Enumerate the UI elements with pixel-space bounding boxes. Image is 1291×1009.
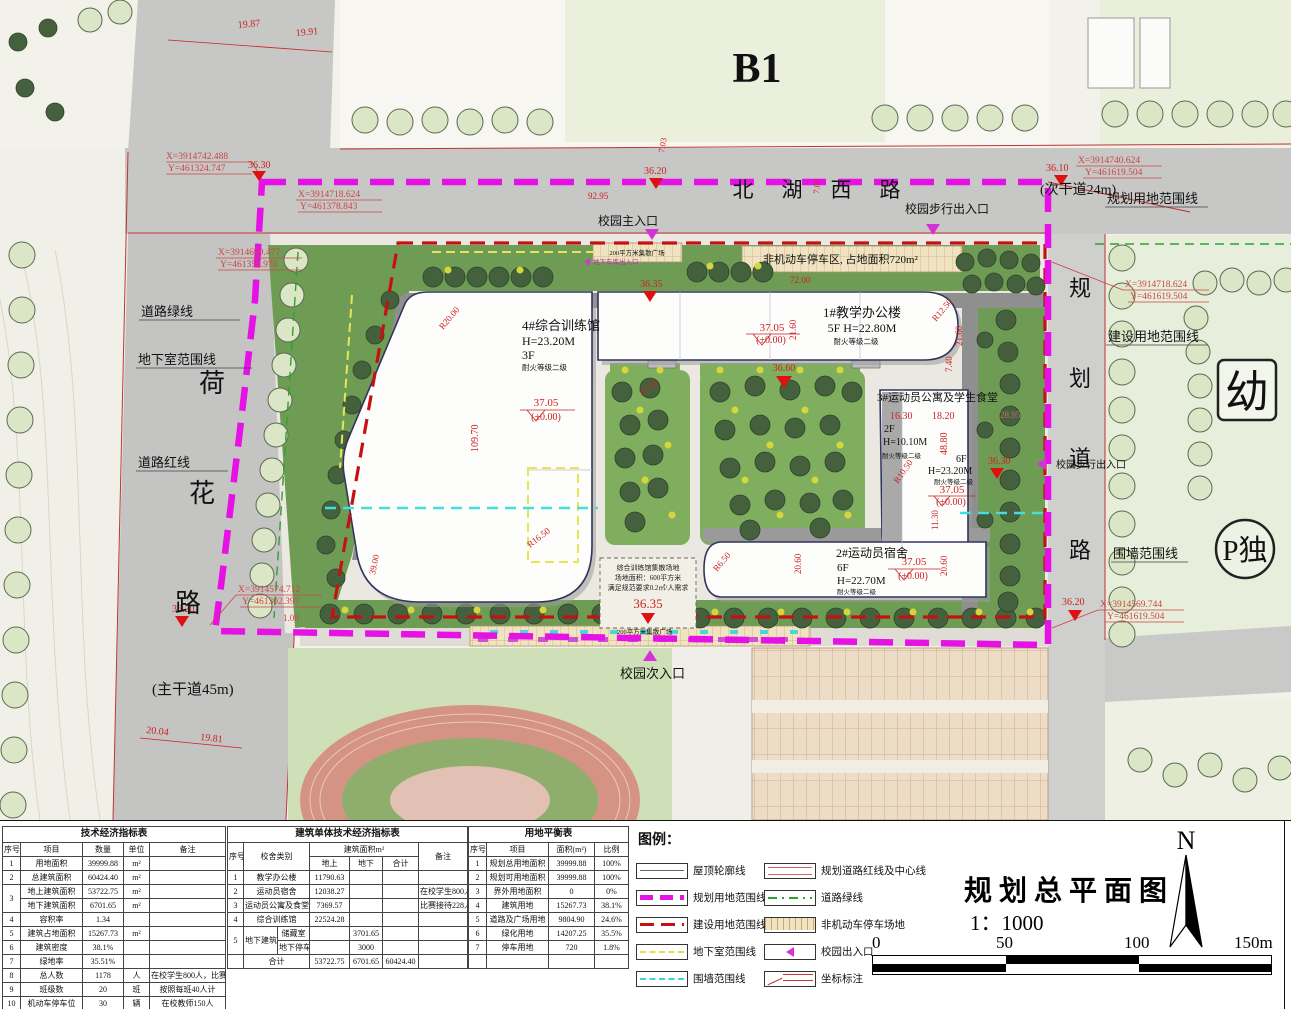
building-height: H=22.70M bbox=[837, 575, 886, 587]
table-cell: 1178 bbox=[83, 969, 124, 983]
legend-item: 屋顶轮廓线 bbox=[636, 857, 764, 884]
note-line-3: 满足规范要求0.2㎡/人需求 bbox=[608, 583, 689, 592]
table-cell bbox=[350, 899, 383, 913]
elevation-pm000: (±0.00) bbox=[756, 335, 786, 346]
table-cell: 按照每班40人计 bbox=[150, 983, 226, 997]
table-cell: 22524.28 bbox=[310, 913, 350, 927]
scale-tick: 150m bbox=[1234, 933, 1273, 953]
table-cell: 地下建筑 bbox=[244, 927, 278, 955]
coord-y: Y=461302.397 bbox=[242, 597, 300, 607]
table-cell: 4 bbox=[3, 913, 21, 927]
building-fire-rating: 耐火等级二级 bbox=[934, 477, 974, 486]
label-basement-boundary: 地下室范围线 bbox=[138, 352, 216, 367]
table-cell bbox=[350, 913, 383, 927]
coord-y: Y=461619.504 bbox=[1085, 168, 1143, 178]
table-cell: 5 bbox=[469, 913, 487, 927]
building-height: H=23.20M bbox=[522, 334, 575, 348]
table-cell: 100% bbox=[595, 857, 629, 871]
road-name-east: 划 bbox=[1069, 366, 1091, 391]
label-plaza200-top: 200平方米集散广场 bbox=[609, 248, 665, 257]
table-cell bbox=[419, 871, 468, 885]
table-cell: 1 bbox=[228, 871, 244, 885]
table-cell: 5 bbox=[228, 927, 244, 955]
table-cell: 39999.88 bbox=[83, 857, 124, 871]
coord-y: Y=461356.970 bbox=[220, 260, 278, 270]
table-cell: 用地平衡表 bbox=[469, 827, 629, 843]
table-cell: 备注 bbox=[150, 843, 226, 857]
road-name-west: 荷 bbox=[199, 369, 225, 398]
table-cell: 100% bbox=[595, 871, 629, 885]
table-cell bbox=[383, 927, 419, 941]
dim-2060: 20.60 bbox=[939, 555, 949, 576]
table-cell bbox=[383, 941, 419, 955]
table-cell: 60424.40 bbox=[383, 955, 419, 969]
table-cell: 序号 bbox=[228, 843, 244, 871]
table-cell bbox=[150, 871, 226, 885]
table-cell: 15267.73 bbox=[549, 899, 595, 913]
elevation-3705: 37.05 bbox=[760, 322, 785, 334]
road-redline-swatch bbox=[764, 863, 816, 879]
table-cell: 序号 bbox=[469, 843, 487, 857]
note-line-1: 综合训练馆集散场地 bbox=[617, 563, 680, 572]
building-floors: 3F bbox=[522, 348, 535, 362]
coord-x: X=3914740.624 bbox=[1078, 156, 1140, 166]
table-cell: 3 bbox=[228, 899, 244, 913]
dim-705: 7.05 bbox=[811, 178, 822, 194]
label-plaza200-bottom: 200平方米集散广场 bbox=[617, 627, 673, 636]
table-cell: 20 bbox=[83, 983, 124, 997]
table-cell: 合计 bbox=[244, 955, 310, 969]
coord-y: Y=461378.843 bbox=[300, 202, 358, 212]
coord-x: X=3914699.477 bbox=[218, 248, 280, 258]
dim-1630: 16.30 bbox=[890, 411, 913, 422]
building-fire-rating: 耐火等级二级 bbox=[522, 362, 567, 372]
road-name-north: 西 bbox=[831, 178, 852, 202]
legend-item: 建设用地范围线 bbox=[636, 911, 764, 938]
coord-y: Y=461619.504 bbox=[1130, 292, 1188, 302]
table-cell: 0 bbox=[549, 885, 595, 899]
dim-4880: 48.80 bbox=[939, 433, 950, 456]
table-cell: 3 bbox=[469, 885, 487, 899]
table-cell: 总建筑面积 bbox=[21, 871, 83, 885]
legend-item: 地下室范围线 bbox=[636, 938, 764, 965]
table-cell bbox=[150, 857, 226, 871]
building-height: H=23.20M bbox=[928, 466, 972, 477]
table-cell bbox=[150, 913, 226, 927]
table-cell: 9804.90 bbox=[549, 913, 595, 927]
table-cell bbox=[124, 955, 150, 969]
dim-7200: 72.00 bbox=[790, 275, 811, 285]
table-cell: 6 bbox=[3, 941, 21, 955]
table-cell: 建筑面积m² bbox=[310, 843, 419, 857]
label-ped-exit-right: 校园步行出入口 bbox=[1056, 458, 1126, 471]
legend-item: 围墙范围线 bbox=[636, 965, 764, 992]
building-fire-rating: 耐火等级二级 bbox=[837, 587, 877, 596]
note-line-2: 场地面积：600平方米 bbox=[615, 573, 682, 582]
building-height: H=10.10M bbox=[883, 437, 927, 448]
table-cell: 在校学生800人，比赛228人 bbox=[150, 969, 226, 983]
table-cell bbox=[310, 927, 350, 941]
table-cell: 7 bbox=[3, 955, 21, 969]
table-cell bbox=[310, 941, 350, 955]
table-cell: 用地面积 bbox=[21, 857, 83, 871]
table-cell: 11790.63 bbox=[310, 871, 350, 885]
table-cell bbox=[383, 913, 419, 927]
road-name-north: 北 bbox=[733, 178, 754, 202]
table-cell: 5 bbox=[3, 927, 21, 941]
legend-label: 围墙范围线 bbox=[693, 971, 746, 986]
table-cell bbox=[419, 913, 468, 927]
table-cell: 项目 bbox=[487, 843, 549, 857]
planning-boundary-swatch bbox=[636, 890, 688, 906]
road-name-east: 路 bbox=[1069, 538, 1091, 563]
table-cell: 地上建筑面积 bbox=[21, 885, 83, 899]
table-cell: 教学办公楼 bbox=[244, 871, 310, 885]
table-cell: 0% bbox=[595, 885, 629, 899]
table-cell: 15267.73 bbox=[83, 927, 124, 941]
table-cell: 39999.88 bbox=[549, 857, 595, 871]
elevation-3630-corner: 36.30 bbox=[248, 160, 271, 171]
kindergarten-badge: 幼 bbox=[1225, 368, 1269, 417]
table-cell: 4 bbox=[228, 913, 244, 927]
table-cell: 运动员宿舍 bbox=[244, 885, 310, 899]
building-floors: 2F bbox=[884, 424, 895, 435]
table-cell: 界外用地面积 bbox=[487, 885, 549, 899]
dim-2060: 20.60 bbox=[793, 553, 803, 574]
table-cell: 停车用地 bbox=[487, 941, 549, 955]
label-secondary-entrance: 校园次入口 bbox=[620, 666, 685, 681]
table-cell: 9 bbox=[3, 983, 21, 997]
elevation-3635-note: 36.35 bbox=[633, 596, 662, 611]
building-name: 3#运动员公寓及学生食堂 bbox=[877, 390, 998, 404]
road-name-east: 规 bbox=[1069, 276, 1091, 301]
dim-9295: 92.95 bbox=[588, 191, 609, 201]
table-cell: 7 bbox=[469, 941, 487, 955]
site-plan: 综合训练馆集散场地 场地面积：600平方米 满足规范要求0.2㎡/人需求 36.… bbox=[0, 0, 1291, 820]
label-plan-boundary: 规划用地范围线 bbox=[1107, 191, 1198, 206]
table-cell: 比例 bbox=[595, 843, 629, 857]
table-cell bbox=[383, 885, 419, 899]
table-cell: 24.6% bbox=[595, 913, 629, 927]
elevation-3635-top: 36.35 bbox=[640, 279, 663, 290]
table-cell bbox=[150, 941, 226, 955]
basement-boundary-swatch bbox=[636, 944, 688, 960]
table-cell bbox=[150, 899, 226, 913]
sheet-border-line bbox=[1284, 821, 1285, 1009]
table-cell bbox=[419, 941, 468, 955]
legend-label: 屋顶轮廓线 bbox=[693, 863, 746, 878]
coord-y: Y=461619.504 bbox=[1107, 612, 1165, 622]
building-fire-rating: 耐火等级二级 bbox=[834, 336, 879, 346]
coord-x: X=3914742.488 bbox=[166, 152, 228, 162]
table-cell: 容积率 bbox=[21, 913, 83, 927]
coord-x: X=3914574.712 bbox=[238, 585, 300, 595]
legend-label: 规划用地范围线 bbox=[693, 890, 767, 905]
table-cell: 4 bbox=[469, 899, 487, 913]
campus-gate-swatch bbox=[764, 944, 816, 960]
building-fire-rating: 耐火等级二级 bbox=[882, 451, 922, 460]
table-cell: 1 bbox=[469, 857, 487, 871]
coord-y: Y=461324.747 bbox=[168, 164, 226, 174]
legend-item: 规划用地范围线 bbox=[636, 884, 764, 911]
table-cell: 6 bbox=[469, 927, 487, 941]
elevation-3610: 36.10 bbox=[1046, 163, 1069, 174]
table-cell: 1.34 bbox=[83, 913, 124, 927]
bike-parking-swatch bbox=[764, 917, 816, 933]
road-name-north: 湖 bbox=[782, 178, 803, 202]
title-panel: 技术经济指标表序号项目数量单位备注1用地面积39999.88m²2总建筑面积60… bbox=[0, 820, 1291, 1009]
table-cell bbox=[350, 885, 383, 899]
dim-1987: 19.87 bbox=[237, 18, 260, 31]
table-cell: m² bbox=[124, 857, 150, 871]
table-cell: 8 bbox=[3, 969, 21, 983]
drawing-title: 规划总平面图 bbox=[964, 869, 1174, 909]
dim-1991: 19.91 bbox=[295, 26, 318, 39]
dim-10970: 109.70 bbox=[470, 425, 481, 453]
north-label: N bbox=[1177, 826, 1196, 855]
table-cell: 30 bbox=[83, 997, 124, 1009]
table-cell: 在校学生800人 bbox=[419, 885, 468, 899]
scale-tick: 50 bbox=[996, 933, 1013, 953]
table-cell: 38.1% bbox=[83, 941, 124, 955]
building-floors: 6F bbox=[956, 454, 967, 465]
elevation-pm000: (±0.00) bbox=[531, 412, 561, 423]
elevation-3620-top: 36.20 bbox=[644, 166, 667, 177]
table-cell: 储藏室 bbox=[278, 927, 310, 941]
table-cell bbox=[150, 955, 226, 969]
table-cell bbox=[595, 955, 629, 969]
label-wall-boundary: 围墙范围线 bbox=[1113, 546, 1178, 561]
label-ped-exit-top: 校园步行出入口 bbox=[905, 201, 989, 216]
table-cell: 7369.57 bbox=[310, 899, 350, 913]
table-cell: 运动员公寓及食堂 bbox=[244, 899, 310, 913]
table-cell: 14207.25 bbox=[549, 927, 595, 941]
building-indicators-table: 建筑单体技术经济指标表序号校舍类别建筑面积m²备注地上地下合计1教学办公楼117… bbox=[227, 826, 468, 969]
table-cell: 规划总用地面积 bbox=[487, 857, 549, 871]
table-cell: 建筑用地 bbox=[487, 899, 549, 913]
legend-label: 道路绿线 bbox=[821, 890, 863, 905]
elevation-3620-se: 36.20 bbox=[1062, 597, 1085, 608]
table-cell: 地下 bbox=[350, 857, 383, 871]
table-cell bbox=[419, 955, 468, 969]
coord-x: X=3914569.744 bbox=[1100, 600, 1162, 610]
road-name-west: 花 bbox=[189, 479, 215, 508]
label-garage-entrance: 地下车库出入口 bbox=[593, 257, 639, 266]
table-cell: 合计 bbox=[383, 857, 419, 871]
dim-2004: 20.04 bbox=[146, 725, 170, 738]
dim-1981: 19.81 bbox=[200, 732, 224, 745]
label-build-boundary: 建设用地范围线 bbox=[1108, 329, 1199, 344]
table-cell bbox=[150, 927, 226, 941]
table-cell: 10 bbox=[3, 997, 21, 1009]
table-cell: 53722.75 bbox=[83, 885, 124, 899]
table-cell: 单位 bbox=[124, 843, 150, 857]
building-floors-height: 5F H=22.80M bbox=[828, 321, 897, 335]
table-cell: 绿化用地 bbox=[487, 927, 549, 941]
table-cell: 综合训练馆 bbox=[244, 913, 310, 927]
table-cell bbox=[383, 871, 419, 885]
dim-1130: 11.30 bbox=[930, 510, 940, 530]
table-cell: 地下停车 bbox=[278, 941, 310, 955]
table-cell bbox=[228, 955, 244, 969]
legend-label: 建设用地范围线 bbox=[693, 917, 767, 932]
coord-x: X=3914718.624 bbox=[298, 190, 360, 200]
table-cell: 道路及广场用地 bbox=[487, 913, 549, 927]
wall-boundary-swatch bbox=[636, 971, 688, 987]
scale-bar: 0 50 100 150m bbox=[872, 933, 1272, 975]
table-cell bbox=[124, 913, 150, 927]
table-cell: 班 bbox=[124, 983, 150, 997]
table-cell: m² bbox=[124, 927, 150, 941]
scale-tick: 0 bbox=[872, 933, 881, 953]
elevation-3705: 37.05 bbox=[534, 397, 559, 409]
table-cell: 6701.65 bbox=[350, 955, 383, 969]
table-cell: 建筑密度 bbox=[21, 941, 83, 955]
table-cell: 35.51% bbox=[83, 955, 124, 969]
road-name-north: 路 bbox=[880, 178, 901, 202]
table-cell: 序号 bbox=[3, 843, 21, 857]
dim-740: 7.40 bbox=[944, 356, 954, 372]
table-cell bbox=[487, 955, 549, 969]
building-name: 2#运动员宿舍 bbox=[836, 545, 908, 560]
table-cell: 建筑占地面积 bbox=[21, 927, 83, 941]
table-cell bbox=[124, 941, 150, 955]
table-cell: 2 bbox=[469, 871, 487, 885]
table-cell: 辆 bbox=[124, 997, 150, 1009]
table-cell: m² bbox=[124, 871, 150, 885]
dim-2895: 28.95 bbox=[1000, 410, 1021, 420]
table-cell: 6701.65 bbox=[83, 899, 124, 913]
road-name-west: 路 bbox=[175, 589, 201, 618]
building-name: 4#综合训练馆 bbox=[522, 318, 600, 333]
dim-2160: 21.60 bbox=[954, 325, 964, 346]
drawing-sheet: 综合训练馆集散场地 场地面积：600平方米 满足规范要求0.2㎡/人需求 36.… bbox=[0, 0, 1291, 1009]
label-road-red: 道路红线 bbox=[138, 455, 190, 470]
table-cell: 数量 bbox=[83, 843, 124, 857]
table-cell bbox=[350, 871, 383, 885]
coordinate-swatch bbox=[764, 971, 816, 987]
table-cell: 规划可用地面积 bbox=[487, 871, 549, 885]
label-main-entrance: 校园主入口 bbox=[598, 213, 658, 228]
table-cell: 2 bbox=[228, 885, 244, 899]
table-cell bbox=[469, 955, 487, 969]
table-cell: 比赛接待228人 bbox=[419, 899, 468, 913]
dim-2160: 21.60 bbox=[788, 319, 798, 340]
road-greenline-swatch bbox=[764, 890, 816, 906]
table-cell bbox=[419, 927, 468, 941]
table-cell: 1.8% bbox=[595, 941, 629, 955]
table-cell: 60424.40 bbox=[83, 871, 124, 885]
table-cell: 3000 bbox=[350, 941, 383, 955]
building-floors: 6F bbox=[837, 562, 849, 574]
table-cell: 绿地率 bbox=[21, 955, 83, 969]
parking-badge: P独 bbox=[1222, 534, 1267, 567]
table-cell bbox=[549, 955, 595, 969]
table-cell: 39999.88 bbox=[549, 871, 595, 885]
table-cell bbox=[383, 899, 419, 913]
elevation-3630-east: 36.30 bbox=[988, 456, 1011, 467]
table-cell: 机动车停车位 bbox=[21, 997, 83, 1009]
table-cell: 3 bbox=[3, 885, 21, 913]
elevation-pm000: (±0.00) bbox=[898, 571, 928, 582]
elevation-pm000: (±0.00) bbox=[936, 497, 966, 508]
scale-bar-graphic bbox=[872, 955, 1272, 975]
table-cell: 地上 bbox=[310, 857, 350, 871]
table-cell: 总人数 bbox=[21, 969, 83, 983]
scale-tick: 100 bbox=[1124, 933, 1150, 953]
sports-field bbox=[288, 648, 672, 820]
table-cell: 项目 bbox=[21, 843, 83, 857]
roof-outline-swatch bbox=[636, 863, 688, 879]
title-block: 规划总平面图 1：1000 N 0 50 100 150m bbox=[860, 821, 1284, 1009]
table-cell: 2 bbox=[3, 871, 21, 885]
table-cell bbox=[150, 885, 226, 899]
table-cell: 12038.27 bbox=[310, 885, 350, 899]
table-cell: 人 bbox=[124, 969, 150, 983]
table-cell: 38.1% bbox=[595, 899, 629, 913]
legend: 图例： 屋顶轮廓线 规划用地范围线 建设用地范围线 地下室范围线 围墙范围线 规… bbox=[636, 827, 888, 992]
table-cell: 3701.65 bbox=[350, 927, 383, 941]
legend-title: 图例： bbox=[638, 829, 888, 849]
table-cell: 53722.75 bbox=[310, 955, 350, 969]
table-cell: 720 bbox=[549, 941, 595, 955]
table-cell: 班级数 bbox=[21, 983, 83, 997]
elevation-3660: 36.60 bbox=[773, 363, 796, 374]
dim-100: 1.00 bbox=[283, 613, 299, 623]
table-cell: 建筑单体技术经济指标表 bbox=[228, 827, 468, 843]
road-north-note: (次干道24m) bbox=[1040, 182, 1117, 198]
table-cell: 在校教师150人 bbox=[150, 997, 226, 1009]
table-cell: 备注 bbox=[419, 843, 468, 871]
building-name: 1#教学办公楼 bbox=[823, 305, 901, 320]
table-cell: 35.5% bbox=[595, 927, 629, 941]
table-cell: 1 bbox=[3, 857, 21, 871]
road-west-note: (主干道45m) bbox=[152, 681, 234, 698]
legend-label: 地下室范围线 bbox=[693, 944, 756, 959]
label-road-green: 道路绿线 bbox=[141, 304, 193, 319]
table-cell: 地下建筑面积 bbox=[21, 899, 83, 913]
training-hall-note: 综合训练馆集散场地 场地面积：600平方米 满足规范要求0.2㎡/人需求 36.… bbox=[600, 558, 696, 628]
construction-boundary-swatch bbox=[636, 917, 688, 933]
dim-1820: 18.20 bbox=[932, 411, 955, 422]
block-label-b1: B1 bbox=[732, 46, 781, 92]
label-bike-parking: 非机动车停车区, 占地面积720m² bbox=[763, 252, 919, 266]
table-cell: 技术经济指标表 bbox=[3, 827, 226, 843]
coord-x: X=3914718.624 bbox=[1125, 280, 1187, 290]
economic-indicators-table: 技术经济指标表序号项目数量单位备注1用地面积39999.88m²2总建筑面积60… bbox=[2, 826, 226, 1009]
legend-label: 坐标标注 bbox=[821, 971, 863, 986]
table-cell: 面积(m²) bbox=[549, 843, 595, 857]
land-balance-table: 用地平衡表序号项目面积(m²)比例1规划总用地面积39999.88100%2规划… bbox=[468, 826, 629, 969]
table-cell: m² bbox=[124, 885, 150, 899]
table-cell: 校舍类别 bbox=[244, 843, 310, 871]
table-cell: m² bbox=[124, 899, 150, 913]
